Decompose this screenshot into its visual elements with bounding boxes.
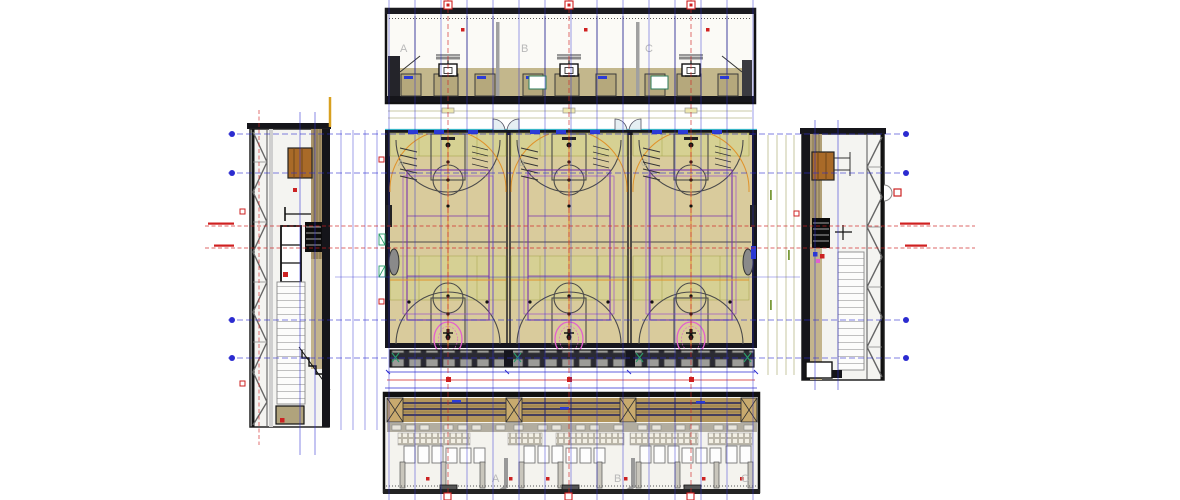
bleacher-band (390, 350, 754, 367)
mat-roll (389, 249, 399, 275)
scoreboard-panel (529, 76, 546, 89)
elevation-doors (401, 74, 738, 96)
cad-drawing: A B C A B C (0, 0, 1180, 500)
detail-bubble (884, 185, 892, 201)
top-elevation-label-b: B (521, 43, 528, 55)
cad-sheet: A B C A B C (0, 0, 1180, 500)
base-plinth (806, 362, 832, 378)
left-dim-strip (341, 130, 377, 430)
rain-pipe (636, 22, 640, 96)
right-section-view (800, 120, 901, 390)
floor-plan-view: A B C (379, 130, 756, 367)
stair-block (388, 56, 400, 96)
ledge-band (387, 423, 757, 432)
downpipe (504, 458, 508, 488)
window-symbols (379, 234, 385, 277)
bottom-elevation-label-c: C (741, 473, 749, 485)
left-section-view (247, 110, 331, 455)
rain-pipe (496, 22, 500, 96)
plan-court-label-c: C (641, 158, 648, 168)
climbing-frame (277, 282, 305, 404)
plan-court-label-a: A (398, 158, 404, 168)
plan-court-label-b: B (519, 158, 525, 168)
right-dim-strip (768, 135, 794, 375)
grid-bubbles-bottom (444, 493, 694, 500)
top-elevation-label-a: A (400, 43, 408, 55)
heater-unit (305, 222, 322, 252)
scoreboard-panel (651, 76, 668, 89)
climbing-frame (838, 252, 864, 370)
bottom-elevation-label-b: B (614, 473, 621, 485)
detail-marker (894, 189, 901, 196)
downpipe (631, 458, 635, 488)
clerestory-slat-band (387, 398, 757, 422)
bottom-elevation-view: A B C (383, 392, 760, 494)
